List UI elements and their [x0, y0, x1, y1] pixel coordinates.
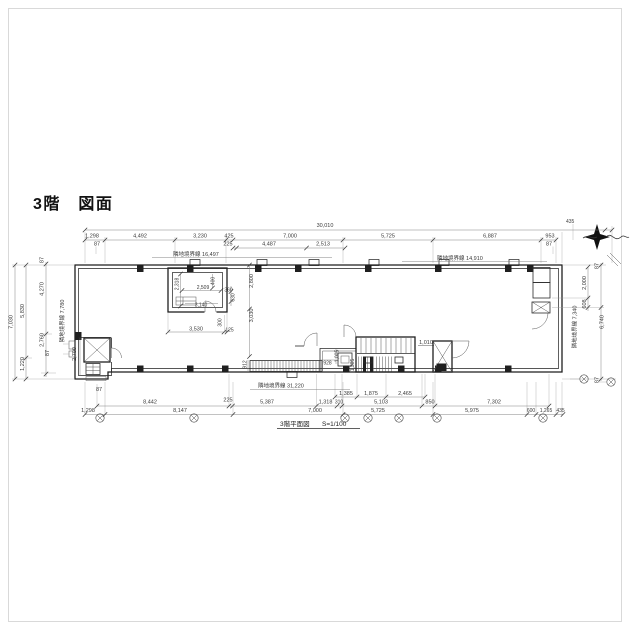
dim-text: 1,010 [419, 340, 433, 346]
dim-text: 87 [94, 242, 100, 248]
dim-text: 5,830 [20, 304, 26, 318]
dim-text: 912 [243, 360, 249, 369]
dim-text: 2,700 [72, 347, 78, 361]
boundary-label-top-left: 隣地境界線 16,497 [152, 250, 332, 258]
dim-text: 8,147 [173, 408, 187, 414]
dim-text: 7,302 [487, 400, 501, 406]
compass-north-icon [583, 224, 629, 250]
dim-text: 2,000 [582, 276, 588, 290]
dim-text: 1,305 [350, 359, 356, 372]
dim-left: 7,030 5,830 1,220 87 4,270 2,760 87 隣地境界… [9, 257, 81, 381]
dim-text: 5,725 [371, 408, 385, 414]
hatch-strip [248, 360, 322, 372]
dim-text: 608 [582, 299, 588, 308]
dim-text: 5,103 [374, 400, 388, 406]
dim-text: 1,318 [319, 400, 333, 406]
drawing-page: 3階 図面 [0, 0, 630, 630]
caption-name: 3階平面図 [280, 419, 310, 428]
dim-text: 225 [223, 398, 232, 404]
dim-text: 225 [223, 242, 232, 248]
dim-text: 2,318 [175, 278, 181, 291]
dim-text: 435 [556, 408, 565, 414]
dim-text: 4,487 [262, 242, 276, 248]
dim-text: 630 [231, 293, 237, 302]
dim-text: 1,298 [81, 408, 95, 414]
dim-text: 7,000 [308, 408, 322, 414]
dim-text: 1,005 [335, 350, 341, 363]
boundary-text: 隣地境界線 31,220 [258, 382, 304, 390]
dim-text: 4,270 [40, 282, 46, 296]
boundary-label-top-right: 隣地境界線 14,910 [402, 254, 547, 262]
dim-bottom: 87 1,385 1,875 2,465 8,442 225 5,387 1,3… [81, 374, 565, 417]
boundary-text: 隣地境界線 7,340 [571, 306, 579, 349]
boundary-text: 隣地境界線 7,780 [58, 300, 66, 343]
boundary-text: 隣地境界線 14,910 [437, 254, 483, 262]
dim-text: 7,000 [283, 234, 297, 240]
dim-text: 435 [566, 219, 575, 225]
structural-columns [76, 266, 534, 373]
dim-text: 7,030 [9, 315, 15, 329]
floor-plan-drawing: 3階 図面 [0, 0, 630, 630]
dim-text: 953 [545, 234, 554, 240]
dim-top: 30,010 435 1,298 4,492 3,230 425 7,000 5… [83, 219, 614, 263]
dim-text: 5,975 [465, 408, 479, 414]
dim-text: 3,030 [249, 309, 255, 323]
caption-scale: S=1/100 [322, 421, 347, 428]
dim-text: 2,800 [249, 274, 255, 288]
dim-text: 8,442 [143, 400, 157, 406]
dim-text: 600 [527, 408, 536, 414]
dim-text: 310 [335, 400, 344, 406]
dim-text: 2,465 [398, 391, 412, 397]
dim-text: 87 [45, 350, 51, 356]
dim-text: 5,387 [260, 400, 274, 406]
dim-text: 928 [323, 361, 332, 367]
dim-text: 1,220 [20, 357, 26, 371]
dim-text: 1,298 [85, 234, 99, 240]
dim-text: 87 [595, 263, 601, 269]
dim-text: 6,740 [600, 315, 606, 329]
dim-text: 400 [211, 277, 217, 286]
dim-text: 87 [546, 242, 552, 248]
dim-text: 5,725 [381, 234, 395, 240]
dim-text: 3,140 [195, 303, 208, 309]
dim-text: 2,513 [316, 242, 330, 248]
dim-text: 425 [224, 234, 233, 240]
dim-text: 2,760 [40, 333, 46, 347]
dim-text: 3,530 [189, 327, 203, 333]
dim-text: 300 [218, 318, 224, 327]
page-title: 3階 図面 [33, 195, 113, 213]
dim-text: 850 [425, 400, 434, 406]
duct-shafts-right [532, 268, 550, 330]
elevator-shaft [433, 341, 469, 372]
stair-block [344, 325, 434, 372]
dim-text: 1,385 [339, 391, 353, 397]
dim-text: 87 [96, 387, 102, 393]
dim-text: 2,509 [197, 285, 210, 291]
page-border [9, 9, 622, 622]
dim-text: 6,887 [483, 234, 497, 240]
dim-text: 3,230 [193, 234, 207, 240]
interior-dimensions: 2,318 2,509 400 360 630 3,140 3,530 125 … [166, 274, 433, 371]
dim-text: 87 [40, 257, 46, 263]
boundary-text: 隣地境界線 16,497 [173, 250, 219, 258]
dim-text: 1,265 [540, 408, 553, 414]
dim-text: 4,492 [133, 234, 147, 240]
dim-text: 1,875 [364, 391, 378, 397]
dim-text: 360 [224, 288, 233, 294]
dim-text: 30,010 [317, 223, 334, 229]
building-outline [75, 265, 562, 379]
